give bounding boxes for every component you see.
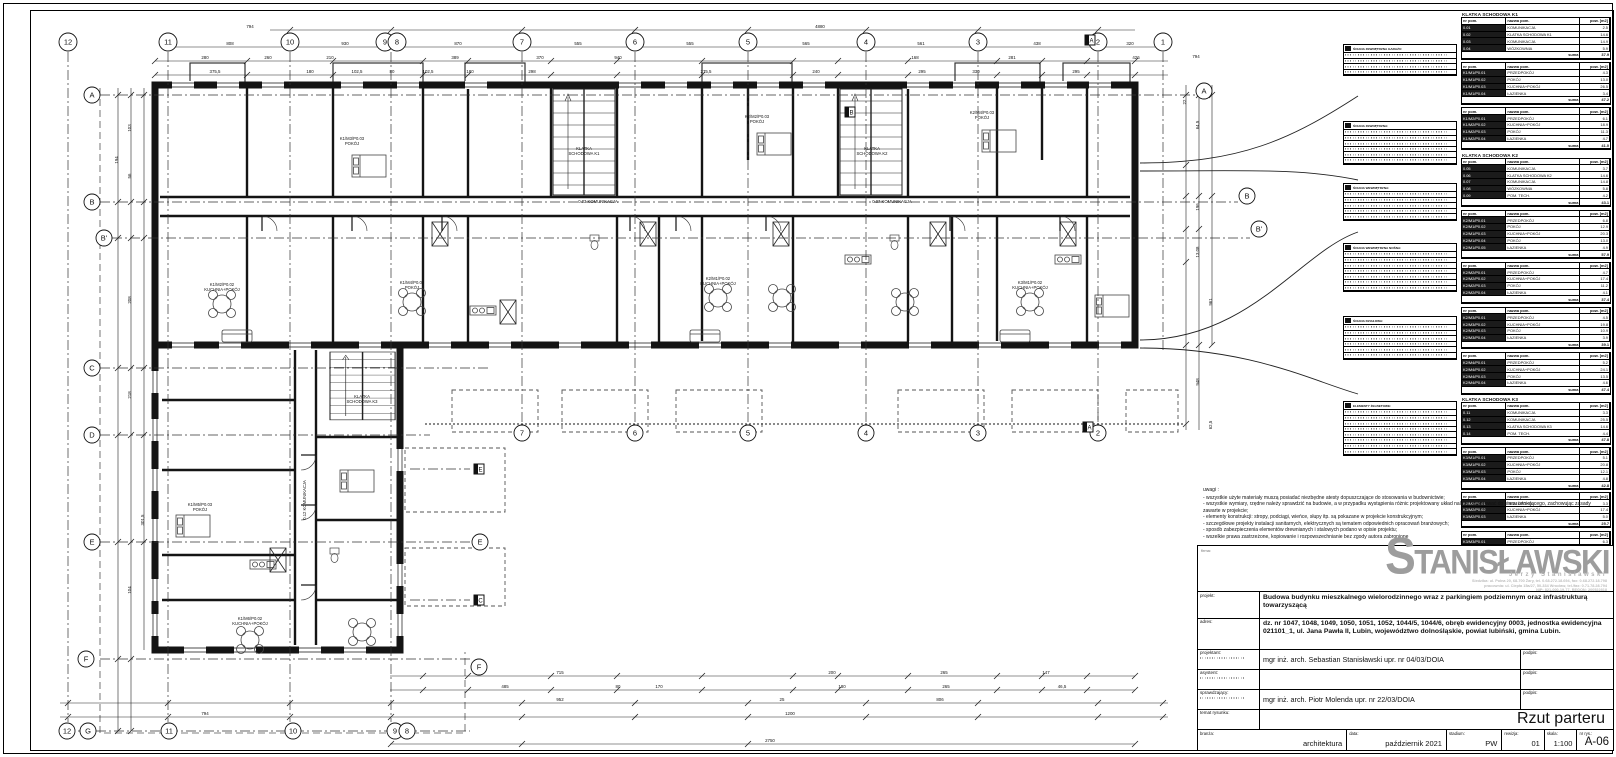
col-header: nr pom. <box>1462 108 1506 114</box>
grid-bubble-label: 5 <box>746 38 750 47</box>
dimension-label: 265 <box>940 670 948 675</box>
col-header: nr pom. <box>1462 263 1506 269</box>
room-name: POM. TECH. <box>1506 430 1580 436</box>
room-row: K1/M1/P0.03KUCHNIA+POKÓJ26.5 <box>1462 84 1610 91</box>
room-id: K2/M3/P0.02 <box>1462 321 1506 327</box>
suma-label: suma <box>1462 296 1580 302</box>
room-row: K1/M2/P0.03POKÓJ11.3 <box>1462 129 1610 136</box>
col-header: pow. [m2] <box>1580 159 1610 165</box>
room-name: KUCHNIA+POKÓJ <box>1506 84 1580 90</box>
room-area: 4.7 <box>1580 269 1610 275</box>
cell-value: październik 2021 <box>1385 739 1442 748</box>
room-row: K2/M1/P0.02POKÓJ12.9 <box>1462 224 1610 231</box>
dimension-label: 275,5 <box>701 69 713 74</box>
shaft <box>432 222 448 246</box>
room-name: KUCHNIA+POKÓJ <box>1506 366 1580 372</box>
col-header: pow. [m2] <box>1580 211 1610 217</box>
room-id: 0.06 <box>1462 172 1506 178</box>
room-id: 0.02 <box>1462 32 1506 38</box>
dimension-label: 22 <box>1182 99 1187 104</box>
grid-bubble-label: C <box>89 364 95 373</box>
title-block-cell-nrrys: nr rys.:A-06 <box>1577 730 1613 750</box>
room-row: K2/M4/P0.02KUCHNIA+POKÓJ24.1 <box>1462 366 1610 373</box>
grid-bubble-label: 12 <box>64 38 72 47</box>
dimension-label: 170 <box>655 684 663 689</box>
grid-bubble-label: E <box>89 538 94 547</box>
title-block-cell-rewizja: rewizja:01 <box>1502 730 1545 750</box>
room-name: KOMUNIKACJA <box>1506 179 1580 185</box>
dimension-label: 240 <box>812 69 820 74</box>
room-area: 5.8 <box>1580 186 1610 192</box>
material-title: ŚCIANA DZIAŁOWA: <box>1353 319 1383 323</box>
col-header: nazwa pom. <box>1506 108 1580 114</box>
room-id: K3/M1/P0.02 <box>1462 462 1506 468</box>
staircase-k3 <box>330 352 395 420</box>
grid-bubble-label: 7 <box>520 429 524 438</box>
material-title: ŚCIANA WEWNĘTRZNA NOŚNA: <box>1353 246 1401 250</box>
room-name: POKÓJ <box>1506 129 1580 135</box>
sum-row: suma47.8 <box>1462 437 1610 444</box>
material-legend-block: ŚCIANA DZIAŁOWA: <box>1343 316 1457 360</box>
cell-value: A-06 <box>1585 736 1609 748</box>
dimension-label: 104 <box>127 586 132 594</box>
room-name: KOMUNIKACJA <box>1506 417 1580 423</box>
room-row: K3/M1/P0.01PRZEDPOKÓJ5.1 <box>1462 455 1610 462</box>
title-block-cell-branża: branża:architektura <box>1198 730 1347 750</box>
dimension-label: 80 <box>390 69 395 74</box>
drawing-title: Rzut parteru <box>1260 709 1613 729</box>
room-area-table: nr pom.nazwa pom.pow. [m2]K2/M1/P0.01PRZ… <box>1461 210 1611 259</box>
room-area: 2.5 <box>1580 25 1610 31</box>
room-name: KOMUNIKACJA <box>1506 165 1580 171</box>
room-name: ŁAZIENKA <box>1506 244 1580 250</box>
dimension-label: 961 <box>1208 298 1213 306</box>
room-row: K2/M3/P0.01PRZEDPOKÓJ4.5 <box>1462 314 1610 321</box>
dimension-label: 794 <box>201 711 209 716</box>
room-name: ŁAZIENKA <box>1506 290 1580 296</box>
room-area: 19.8 <box>1580 321 1610 327</box>
room-id: 0.09 <box>1462 192 1506 198</box>
podpis-label: podpis: <box>1520 689 1613 709</box>
dimension-label: 64,5 <box>1195 120 1200 129</box>
cell-value: 1:100 <box>1554 739 1573 748</box>
suma-label: suma <box>1462 437 1580 443</box>
room-area-table: nr pom.nazwa pom.pow. [m2]0.11KOMUNIKACJ… <box>1461 402 1611 445</box>
dimension-label: 281 <box>1008 55 1016 60</box>
grid-bubble-label: D <box>89 431 95 440</box>
room-label: KUCHNIA+POKÓJ <box>700 281 736 286</box>
room-id: K3/M1/P0.03 <box>1462 469 1506 475</box>
room-row: 0.13KLATKA SCHODOWA K314.6 <box>1462 423 1610 430</box>
col-header: nazwa pom. <box>1506 211 1580 217</box>
room-name: KLATKA SCHODOWA K2 <box>1506 172 1580 178</box>
room-name: POM. TECH. <box>1506 192 1580 198</box>
room-name: PRZEDPOKÓJ <box>1506 360 1580 366</box>
room-label: SCHODOWA K2 <box>856 151 888 156</box>
room-row: K1/M2/P0.01PRZEDPOKÓJ6.1 <box>1462 115 1610 122</box>
furniture <box>176 130 1129 654</box>
room-area: 13.5 <box>1580 373 1610 379</box>
title-block-bottom-strip: branża:architekturadata:październik 2021… <box>1198 729 1613 750</box>
room-label: SCHODOWA K1 <box>568 151 600 156</box>
suma-value: 47.2 <box>1580 97 1610 103</box>
col-header: nr pom. <box>1462 353 1506 359</box>
company-logo-block: firma: STANISŁAWSKI Jerzy Stanisławski S… <box>1197 545 1614 593</box>
cell-value: PW <box>1485 739 1497 748</box>
room-name: POKÓJ <box>1506 283 1580 289</box>
room-id: K1/M2/P0.01 <box>1462 115 1506 121</box>
room-id: K1/M1/P0.03 <box>1462 84 1506 90</box>
room-id: K2/M4/P0.04 <box>1462 380 1506 386</box>
cell-value: 01 <box>1531 739 1539 748</box>
dimension-label: 320 <box>1126 41 1134 46</box>
room-id: 0.08 <box>1462 186 1506 192</box>
section-marker-flag <box>474 464 478 474</box>
shaft <box>930 222 946 246</box>
col-header: nr pom. <box>1462 159 1506 165</box>
asystent-label: asystent: <box>1198 669 1260 689</box>
material-spec-row <box>1344 158 1456 164</box>
room-id: K2/M2/P0.04 <box>1462 290 1506 296</box>
room-row: 0.02KLATKA SCHODOWA K114.6 <box>1462 32 1610 39</box>
room-name: KOMUNIKACJA <box>1506 410 1580 416</box>
dimension-label: 295 <box>918 69 926 74</box>
col-header: nazwa pom. <box>1506 448 1580 454</box>
room-row: 0.12KOMUNIKACJA25.5 <box>1462 417 1610 424</box>
material-spec-row <box>1344 70 1456 76</box>
room-label: KUCHNIA+POKÓJ <box>1012 285 1048 290</box>
dimension-label: 948 <box>1195 378 1200 386</box>
grid-bubble-label: 5 <box>746 429 750 438</box>
dimension-label: 280 <box>201 55 209 60</box>
room-label: 0.03 KOMUNIKACJA <box>578 199 618 204</box>
room-area: 12.9 <box>1580 224 1610 230</box>
room-row: K2/M4/P0.01PRZEDPOKÓJ5.2 <box>1462 360 1610 367</box>
room-name: WÓZKOWNIA <box>1506 186 1580 192</box>
material-legend-column: ŚCIANA ZEWNĘTRZNA GARAŻU:ŚCIANA ZEWNĘTRZ… <box>1343 11 1457 489</box>
room-name: PRZEDPOKÓJ <box>1506 269 1580 275</box>
room-id: K2/M4/P0.01 <box>1462 360 1506 366</box>
dimension-label: 555 <box>686 41 694 46</box>
shaft <box>640 222 656 246</box>
room-row: 0.09POM. TECH.4.2 <box>1462 192 1610 199</box>
suma-label: suma <box>1462 342 1580 348</box>
room-id: K3/M1/P0.01 <box>1462 455 1506 461</box>
grid-bubble-label: 3 <box>976 38 980 47</box>
room-area: 4.8 <box>1580 475 1610 481</box>
room-name: POKÓJ <box>1506 373 1580 379</box>
room-row: K1/M1/P0.02POKÓJ13.0 <box>1462 77 1610 84</box>
room-name: PRZEDPOKÓJ <box>1506 314 1580 320</box>
room-name: KOMUNIKACJA <box>1506 38 1580 44</box>
room-id: 0.13 <box>1462 423 1506 429</box>
dimension-label: 168 <box>911 55 919 60</box>
sum-row: suma37.9 <box>1462 52 1610 59</box>
dimension-label: 806 <box>936 697 944 702</box>
col-header: pow. [m2] <box>1580 403 1610 409</box>
sum-row: suma47.2 <box>1462 97 1610 104</box>
dimension-label: 375,5 <box>210 69 222 74</box>
col-header: nazwa pom. <box>1506 353 1580 359</box>
sum-row: suma57.9 <box>1462 251 1610 258</box>
material-spec-row <box>1344 449 1456 455</box>
room-id: K2/M1/P0.03 <box>1462 231 1506 237</box>
shaft <box>1060 222 1076 246</box>
col-header: nr pom. <box>1462 63 1506 69</box>
grid-bubble-label: 9 <box>383 38 387 47</box>
room-name: KUCHNIA+POKÓJ <box>1506 321 1580 327</box>
room-area: 12.1 <box>1580 469 1610 475</box>
title-block-cell-data: data:październik 2021 <box>1347 730 1447 750</box>
room-name: POKÓJ <box>1506 238 1580 244</box>
room-id: K2/M4/P0.03 <box>1462 373 1506 379</box>
room-row: 0.07KOMUNIKACJA14.8 <box>1462 179 1610 186</box>
sum-row: suma41.0 <box>1462 142 1610 149</box>
room-id: 0.04 <box>1462 45 1506 51</box>
hatch-sample-icon <box>1345 46 1351 51</box>
dimension-label: 438 <box>1033 41 1041 46</box>
grid-bubble-label: 11 <box>165 727 173 736</box>
grid-bubble-label: G <box>85 727 91 736</box>
room-id: K2/M2/P0.01 <box>1462 269 1506 275</box>
room-area: 3.3 <box>1580 410 1610 416</box>
room-area: 6.1 <box>1580 115 1610 121</box>
dimension-label: 210 <box>326 55 334 60</box>
section-marker-flag <box>1083 422 1087 432</box>
dimension-label: 103 <box>127 124 132 132</box>
title-block-cell-stadium: stadium:PW <box>1447 730 1502 750</box>
dimension-label: 4880 <box>815 24 825 29</box>
material-spec-row <box>1344 286 1456 292</box>
title-block: projekt: Budowa budynku mieszkalnego wie… <box>1197 591 1614 751</box>
room-id: K2/M3/P0.04 <box>1462 335 1506 341</box>
room-area: 11.2 <box>1580 283 1610 289</box>
grid-bubble-label: 3 <box>976 429 980 438</box>
dimension-label: 1200 <box>785 711 795 716</box>
hatch-sample-icon <box>1345 318 1351 323</box>
room-row: K3/M1/P0.04ŁAZIENKA4.8 <box>1462 475 1610 482</box>
room-row: K2/M1/P0.05ŁAZIENKA4.9 <box>1462 244 1610 251</box>
room-area: 14.6 <box>1580 172 1610 178</box>
dimension-label: 102,5 <box>352 69 364 74</box>
grid-bubble-label: 12 <box>63 727 71 736</box>
project-address: dz. nr 1047, 1048, 1049, 1050, 1051, 105… <box>1260 618 1613 649</box>
designer-name: mgr inż. arch. Sebastian Stanisławski up… <box>1260 649 1520 669</box>
suma-value: 37.4 <box>1580 296 1610 302</box>
dimension-label: 196 <box>1195 203 1200 211</box>
room-id: 0.07 <box>1462 179 1506 185</box>
room-name: POKÓJ <box>1506 469 1580 475</box>
room-area: 14.6 <box>1580 32 1610 38</box>
section-marker-flag <box>1085 35 1089 45</box>
room-id: K1/M1/P0.04 <box>1462 90 1506 96</box>
room-row: K2/M3/P0.03POKÓJ10.9 <box>1462 328 1610 335</box>
room-id: K1/M1/P0.01 <box>1462 70 1506 76</box>
room-name: POKÓJ <box>1506 328 1580 334</box>
shaft <box>773 222 789 246</box>
material-title: ŚCIANA ZEWNĘTRZNA GARAŻU: <box>1353 47 1402 51</box>
room-area-table: nr pom.nazwa pom.pow. [m2]K1/M1/P0.01PRZ… <box>1461 62 1611 105</box>
room-row: 0.08WÓZKOWNIA5.8 <box>1462 186 1610 193</box>
dimension-label: 330 <box>972 69 980 74</box>
material-legend-block: ELEMENTY ŻELBETOWE: <box>1343 401 1457 456</box>
room-label: KUCHNIA+POKÓJ <box>204 287 240 292</box>
room-label: POKÓJ <box>193 507 207 512</box>
section-marker-label: B <box>849 111 853 117</box>
suma-label: suma <box>1462 52 1580 58</box>
grid-bubble-label: 8 <box>405 727 409 736</box>
room-row: 0.14POM. TECH.4.4 <box>1462 430 1610 437</box>
room-id: 0.14 <box>1462 430 1506 436</box>
room-id: 0.12 <box>1462 417 1506 423</box>
material-legend-block: ŚCIANA ZEWNĘTRZNA: <box>1343 121 1457 165</box>
material-title: ŚCIANA WEWNĘTRZNA: <box>1353 186 1389 190</box>
room-id: 0.05 <box>1462 165 1506 171</box>
dimension-label: 555 <box>574 41 582 46</box>
title-block-cell-skala: skala:1:100 <box>1545 730 1578 750</box>
cell-label: branża: <box>1200 731 1214 736</box>
suma-value: 57.9 <box>1580 251 1610 257</box>
assistant-name <box>1260 669 1520 689</box>
hatch-sample-icon <box>1345 185 1351 190</box>
note-line: - wszystkie wymiary, rzędne należy spraw… <box>1203 501 1609 514</box>
notes-label: uwagi : <box>1203 487 1609 494</box>
drawing-sheet: 12111098765432176543212111098ABB'CDEFGEF… <box>0 0 1616 757</box>
dimension-label: 180 <box>306 69 314 74</box>
room-name: ŁAZIENKA <box>1506 335 1580 341</box>
suma-label: suma <box>1462 142 1580 148</box>
dimension-label: 561 <box>917 41 925 46</box>
col-header: nr pom. <box>1462 403 1506 409</box>
room-name: KOMUNIKACJA <box>1506 25 1580 31</box>
projekt-label: projekt: <box>1198 592 1260 618</box>
col-header: pow. [m2] <box>1580 108 1610 114</box>
room-name: KLATKA SCHODOWA K3 <box>1506 423 1580 429</box>
room-id: K2/M1/P0.04 <box>1462 238 1506 244</box>
room-label: POKÓJ <box>750 119 764 124</box>
section-marker-label: C <box>478 599 483 605</box>
room-row: K2/M3/P0.02KUCHNIA+POKÓJ19.8 <box>1462 321 1610 328</box>
temat-label: temat rysunku: <box>1198 709 1260 729</box>
room-area: 3.7 <box>1580 165 1610 171</box>
cell-label: data: <box>1349 731 1358 736</box>
suma-label: suma <box>1462 251 1580 257</box>
room-area-table: nr pom.nazwa pom.pow. [m2]K1/M2/P0.01PRZ… <box>1461 107 1611 150</box>
dimension-label: 2750 <box>765 738 775 743</box>
room-area-table: nr pom.nazwa pom.pow. [m2]K2/M3/P0.01PRZ… <box>1461 307 1611 350</box>
room-row: K2/M1/P0.03KUCHNIA+POKÓJ20.3 <box>1462 231 1610 238</box>
dimension-label: 147 <box>1042 670 1050 675</box>
room-area: 6.8 <box>1580 217 1610 223</box>
cell-label: skala: <box>1547 731 1558 736</box>
dimension-label: 295 <box>1072 69 1080 74</box>
dimension-label: 200 <box>828 670 836 675</box>
room-area: 20.8 <box>1580 462 1610 468</box>
terraces-south <box>405 390 1178 606</box>
room-id: K1/M2/P0.03 <box>1462 129 1506 135</box>
grid-bubble-label: 4 <box>864 429 868 438</box>
suma-value: 47.4 <box>1580 387 1610 393</box>
room-id: K3/M1/P0.04 <box>1462 475 1506 481</box>
room-name: PRZEDPOKÓJ <box>1506 217 1580 223</box>
room-area: 4.9 <box>1580 244 1610 250</box>
room-row: K2/M2/P0.04ŁAZIENKA4.1 <box>1462 290 1610 297</box>
dimension-label: 870 <box>454 41 462 46</box>
room-area: 24.1 <box>1580 366 1610 372</box>
project-title: Budowa budynku mieszkalnego wielorodzinn… <box>1260 592 1613 618</box>
room-name: KUCHNIA+POKÓJ <box>1506 462 1580 468</box>
room-row: K1/M2/P0.02KUCHNIA+POKÓJ18.9 <box>1462 122 1610 129</box>
room-id: K1/M1/P0.02 <box>1462 77 1506 83</box>
room-area: 4.2 <box>1580 192 1610 198</box>
room-name: KLATKA SCHODOWA K1 <box>1506 32 1580 38</box>
room-id: 0.11 <box>1462 410 1506 416</box>
sum-row: suma43.1 <box>1462 199 1610 206</box>
projektant-label: projektant: <box>1198 649 1260 669</box>
sum-row: suma47.4 <box>1462 387 1610 394</box>
room-name: ŁAZIENKA <box>1506 475 1580 481</box>
dimension-label: 794 <box>1192 54 1200 59</box>
col-header: nr pom. <box>1462 448 1506 454</box>
room-row: K2/M2/P0.02KUCHNIA+POKÓJ17.4 <box>1462 276 1610 283</box>
material-legend-block: ŚCIANA ZEWNĘTRZNA GARAŻU: <box>1343 44 1457 76</box>
room-area-table: nr pom.nazwa pom.pow. [m2]K2/M2/P0.01PRZ… <box>1461 262 1611 305</box>
section-marker-flag <box>845 107 849 117</box>
room-id: K2/M4/P0.02 <box>1462 366 1506 372</box>
room-label: POKÓJ <box>405 285 419 290</box>
suma-label: suma <box>1462 97 1580 103</box>
col-header: nr pom. <box>1462 211 1506 217</box>
room-id: K2/M1/P0.01 <box>1462 217 1506 223</box>
cell-label: stadium: <box>1449 731 1465 736</box>
col-header: pow. [m2] <box>1580 63 1610 69</box>
room-name: PRZEDPOKÓJ <box>1506 115 1580 121</box>
dimension-label: 260 <box>264 55 272 60</box>
callout-curves <box>1140 96 1358 394</box>
grid-bubble-label: 10 <box>289 727 297 736</box>
company-owner: Jerzy Stanisławski <box>1509 572 1607 578</box>
podpis-label: podpis: <box>1520 669 1613 689</box>
room-row: K2/M3/P0.04ŁAZIENKA3.9 <box>1462 335 1610 342</box>
dimension-label: 301,5 <box>140 514 145 526</box>
sprawdzajacy-label: sprawdzający: <box>1198 689 1260 709</box>
grid-bubble-label: 8 <box>395 38 399 47</box>
room-row: K3/M1/P0.02KUCHNIA+POKÓJ20.8 <box>1462 462 1610 469</box>
room-name: ŁAZIENKA <box>1506 380 1580 386</box>
room-area: 4.3 <box>1580 70 1610 76</box>
room-id: 0.03 <box>1462 38 1506 44</box>
dimension-label: 180 <box>466 69 474 74</box>
room-row: K1/M1/P0.01PRZEDPOKÓJ4.3 <box>1462 70 1610 77</box>
suma-value: 43.1 <box>1580 199 1610 205</box>
hatch-sample-icon <box>1345 123 1351 128</box>
suma-label: suma <box>1462 387 1580 393</box>
room-row: K2/M2/P0.01PRZEDPOKÓJ4.7 <box>1462 269 1610 276</box>
room-name: PRZEDPOKÓJ <box>1506 70 1580 76</box>
section-marker-label: A <box>1089 39 1093 45</box>
room-name: POKÓJ <box>1506 224 1580 230</box>
section-marker-label: A <box>1087 426 1091 432</box>
room-area: 4.4 <box>1580 430 1610 436</box>
room-label: SCHODOWA K3 <box>346 399 378 404</box>
col-header: nazwa pom. <box>1506 308 1580 314</box>
material-title: ELEMENTY ŻELBETOWE: <box>1353 404 1391 408</box>
grid-bubble-label: B <box>1244 192 1249 201</box>
room-area-table: nr pom.nazwa pom.pow. [m2]0.01KOMUNIKACJ… <box>1461 17 1611 60</box>
room-tables-column: KLATKA SCHODOWA K1nr pom.nazwa pom.pow. … <box>1461 11 1611 489</box>
room-row: 0.05KOMUNIKACJA3.7 <box>1462 165 1610 172</box>
room-area: 3.4 <box>1580 90 1610 96</box>
